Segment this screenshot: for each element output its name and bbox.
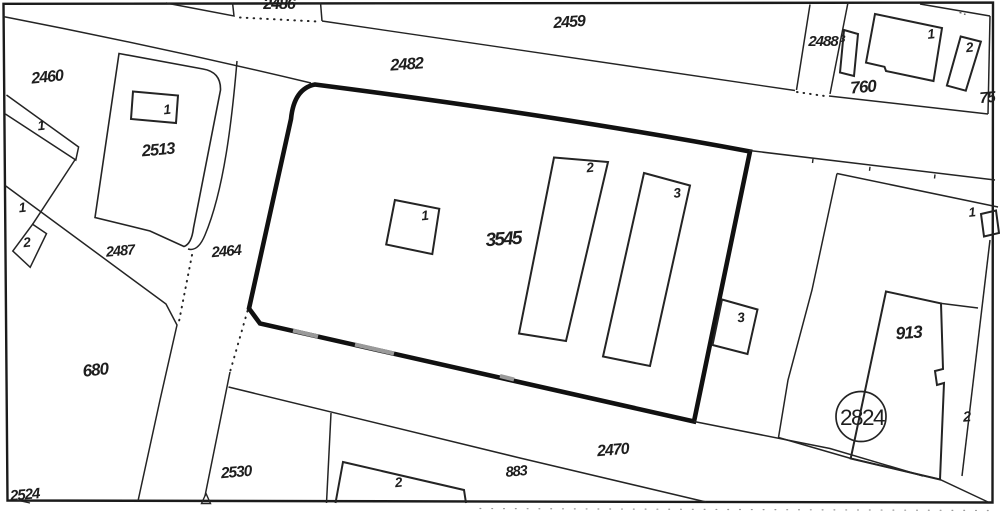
svg-text:1: 1	[163, 102, 172, 118]
svg-text:883: 883	[505, 463, 528, 481]
svg-text:75: 75	[979, 89, 997, 107]
svg-text:2530: 2530	[219, 463, 253, 483]
svg-text:2824: 2824	[840, 405, 885, 430]
svg-text:2464: 2464	[210, 242, 243, 262]
svg-text:1: 1	[37, 118, 46, 134]
svg-text:760: 760	[850, 76, 878, 97]
svg-text:2470: 2470	[595, 440, 630, 460]
svg-text:1: 1	[18, 200, 27, 216]
svg-text:1: 1	[927, 26, 936, 42]
svg-text:680: 680	[82, 359, 111, 381]
svg-text:2460: 2460	[30, 67, 65, 87]
svg-text:2459: 2459	[552, 13, 587, 32]
svg-text:913: 913	[895, 321, 924, 343]
svg-text:1: 1	[968, 204, 977, 220]
svg-text:2488: 2488	[807, 33, 839, 50]
svg-text:2: 2	[962, 409, 972, 426]
svg-text:2482: 2482	[389, 54, 425, 74]
svg-text:3545: 3545	[485, 228, 524, 252]
svg-text:2487: 2487	[104, 242, 136, 261]
svg-text:2513: 2513	[140, 140, 176, 161]
svg-text:2486: 2486	[262, 0, 296, 13]
svg-text:1: 1	[421, 208, 430, 224]
